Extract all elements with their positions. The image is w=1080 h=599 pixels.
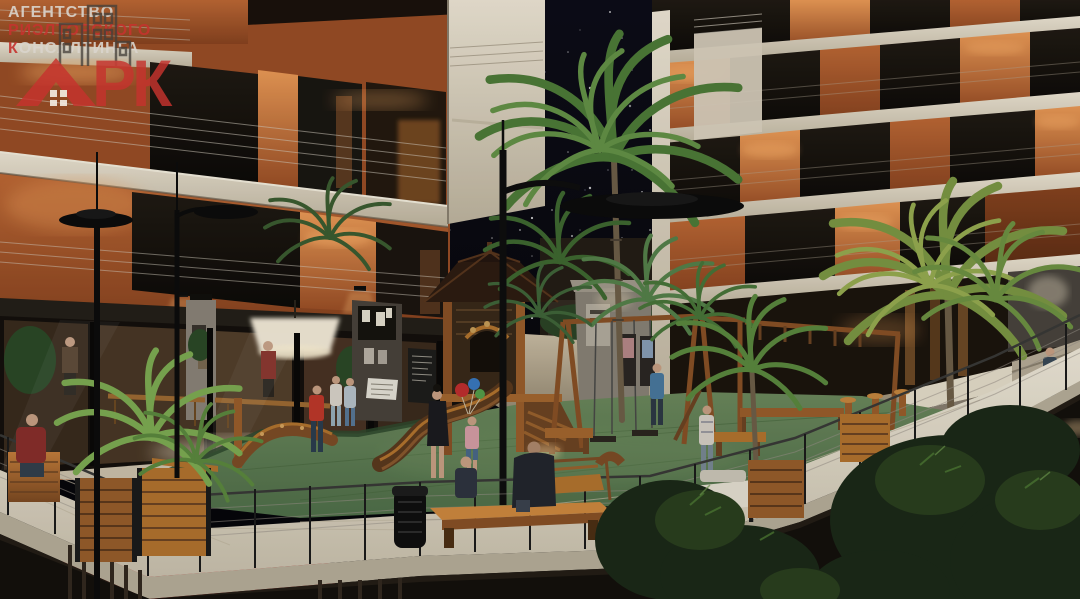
ark-logo: Р К	[8, 2, 208, 114]
letter-p: Р	[92, 46, 136, 114]
letter-k: К	[132, 46, 173, 114]
architectural-render: Р К АГЕНТСТВО РИЭЛТОРСКОГО КОНСАЛТИНГА	[0, 0, 1080, 599]
ark-logo-watermark: Р К АГЕНТСТВО РИЭЛТОРСКОГО КОНСАЛТИНГА	[8, 2, 228, 58]
letter-a-house-icon	[16, 58, 96, 106]
